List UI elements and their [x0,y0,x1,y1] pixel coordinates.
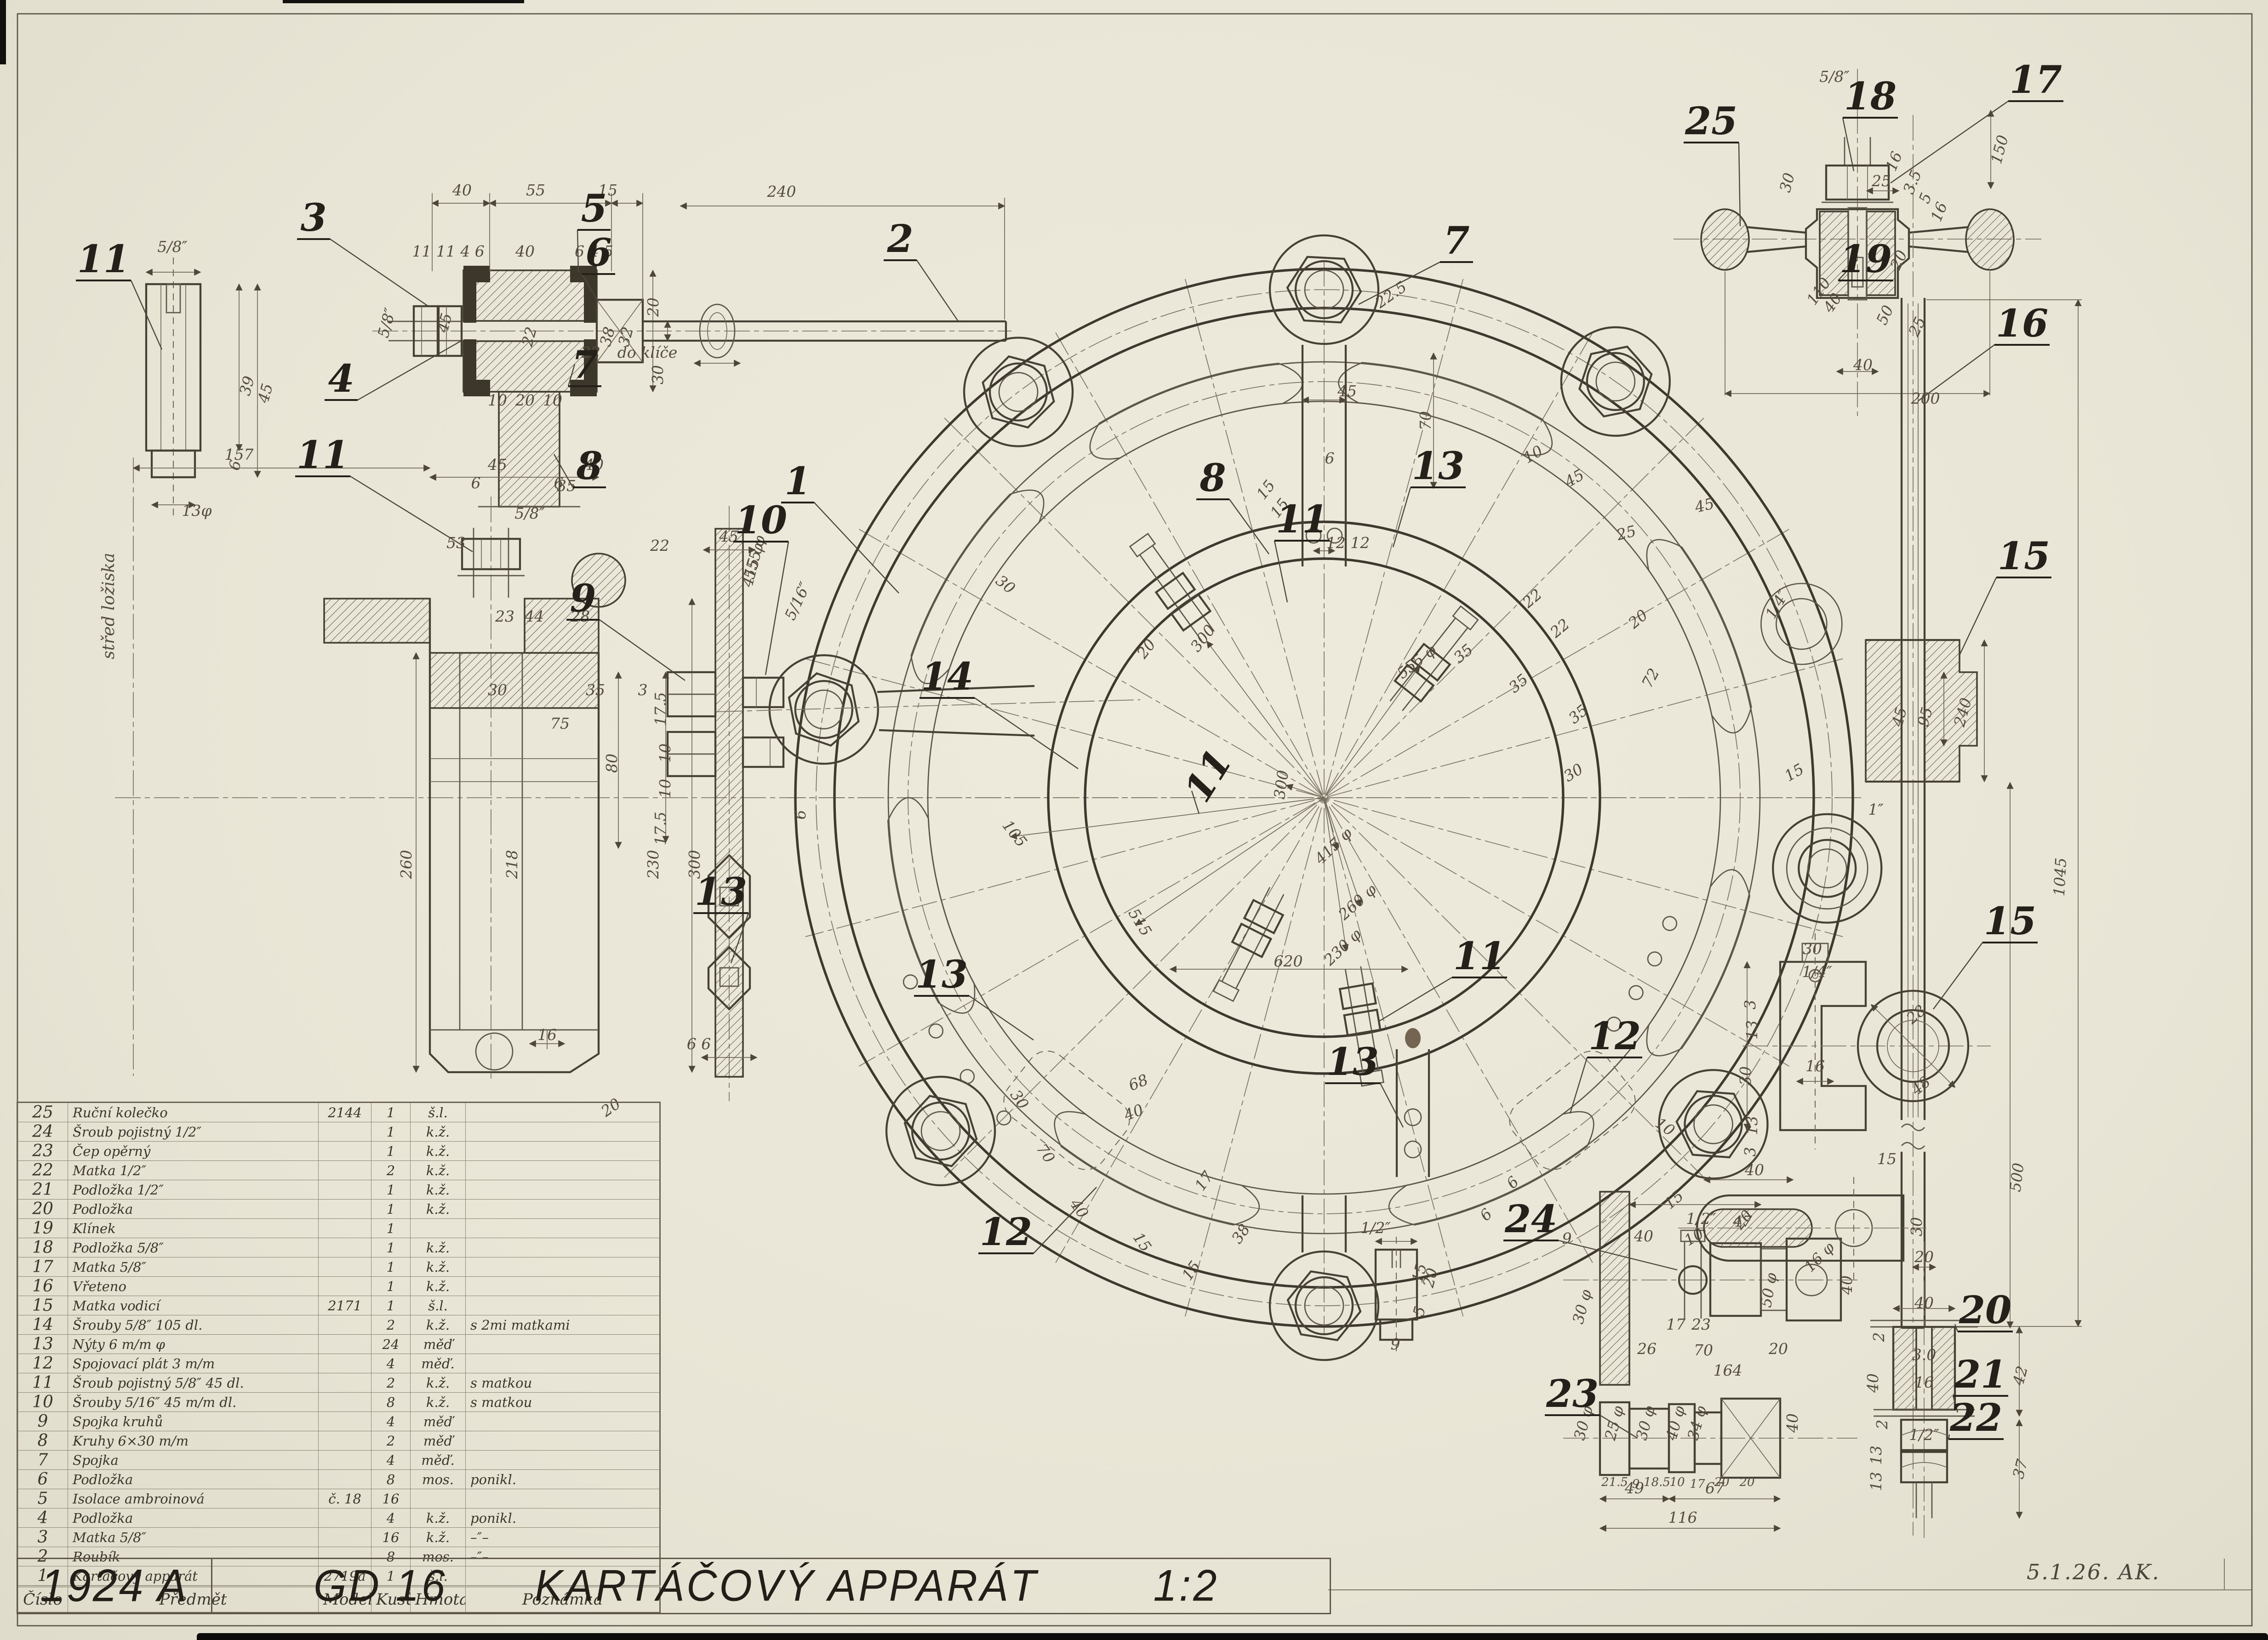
dimension-label: 3 [638,681,648,699]
dimension-label: 30 [488,681,507,699]
dimension-label: 2 [1870,1332,1888,1343]
dimension-label: 10 [1669,1475,1685,1489]
table-cell [319,1200,371,1219]
table-cell: 4 [371,1354,411,1373]
dimension-label: 45 [1337,382,1357,400]
table-cell: k.ž. [411,1238,466,1257]
title-block: 1924 A GD 16 KARTÁČOVÝ APPARÁT 1:2 [17,1558,1331,1614]
table-cell: 1 [371,1277,411,1296]
table-cell: k.ž. [411,1142,466,1161]
dimension-label: 20 [1739,1475,1754,1489]
part-callout: 12 [980,1210,1032,1254]
table-cell: ponikl. [466,1470,660,1489]
part-callout: 2 [886,217,913,261]
part-callout: 11 [1453,934,1506,978]
table-cell [466,1122,660,1142]
dimension-label: 30 [1737,1066,1754,1086]
table-cell: 2144 [319,1103,371,1122]
dimension-label: 620 [1274,952,1303,970]
table-row: 25Ruční kolečko21441š.l. [17,1103,660,1122]
table-row: 24Šroub pojistný 1/2″1k.ž. [17,1122,660,1142]
table-cell [466,1412,660,1431]
table-cell: měď [411,1412,466,1431]
parts-table-body: 25Ruční kolečko21441š.l.24Šroub pojistný… [17,1103,660,1613]
part-callout: 6 [585,231,611,275]
dimension-label: 5/8″ [374,306,400,340]
table-cell: 24 [371,1335,411,1354]
dimension-label: 12 12 [1326,534,1370,552]
dimension-label: 25 φ [1601,1404,1627,1442]
drawing-title: KARTÁČOVÝ APPARÁT [535,1560,1039,1611]
scan-edge-bottom [197,1633,2268,1640]
table-cell: š.l. [411,1103,466,1122]
dimension-label: střed ložiska [99,553,118,659]
dimension-label: 70 [1033,1140,1058,1166]
dimension-label: 1/2″ [1360,1219,1391,1237]
table-cell: k.ž. [411,1509,466,1528]
dimension-label: 6 [1476,1205,1496,1224]
dimension-label: 10 [1520,442,1546,467]
dimension-label: 5/16″ [781,579,814,623]
dimension-label: 3 [1741,1000,1759,1010]
dimension-label: 9 [1562,1229,1572,1247]
table-cell: Spojka [68,1451,319,1470]
dimension-label: 20 [515,391,535,409]
table-cell [319,1354,371,1373]
table-cell [466,1257,660,1277]
table-cell [466,1103,660,1122]
dimension-label: 3 [1741,1147,1759,1157]
part-callout: 11 [297,433,349,477]
dimension-label: 21.5 [1601,1475,1628,1489]
table-cell: k.ž. [411,1180,466,1200]
table-cell: 16 [17,1277,68,1296]
table-cell [319,1412,371,1431]
table-cell: k.ž. [411,1161,466,1180]
part-callout: 13 [1326,1040,1379,1084]
table-cell [466,1354,660,1373]
dimension-label: 6 6 [687,1035,711,1053]
table-row: 8Kruhy 6×30 m/m2měď [17,1431,660,1451]
dimension-label: 30 φ [1569,1287,1595,1326]
table-cell: 1 [371,1257,411,1277]
table-cell: 13 [17,1335,68,1354]
table-cell: Ruční kolečko [68,1103,319,1122]
table-cell: Isolace ambroinová [68,1489,319,1509]
table-cell [319,1238,371,1257]
part-callout: 17 [2010,58,2062,102]
table-cell: 8 [371,1470,411,1489]
dimension-label: 40 [1783,1413,1801,1433]
dimension-label: 50 [1873,303,1897,328]
table-cell: 2 [371,1373,411,1393]
table-row: 3Matka 5/8″16k.ž.–″– [17,1528,660,1547]
table-cell: 6 [17,1470,68,1489]
table-cell [319,1393,371,1412]
part-callout: 8 [1199,456,1226,500]
part-callout: 13 [1412,444,1464,488]
table-cell: 2171 [319,1296,371,1315]
table-cell [466,1238,660,1257]
table-cell: Podložka 1/2″ [68,1180,319,1200]
dimension-label: 20 [644,297,662,317]
table-cell: 1 [371,1296,411,1315]
dimension-label: 157 [225,446,254,463]
table-cell: Podložka [68,1470,319,1489]
dimension-label: 48 [1907,1073,1934,1099]
table-row: 18Podložka 5/8″1k.ž. [17,1238,660,1257]
drawing-scale: 1:2 [1153,1560,1219,1611]
part-callout: 11 [1276,497,1328,542]
title-row: GD 16 KARTÁČOVÝ APPARÁT 1:2 [212,1558,1330,1614]
dimension-label: 16 [1914,1373,1934,1391]
dimension-label: 6 [791,810,809,820]
table-cell: 4 [371,1451,411,1470]
part-callout: 19 [1840,237,1892,281]
table-row: 14Šrouby 5/8″ 105 dl.2k.ž.s 2mi matkami [17,1315,660,1335]
part-callout: 14 [921,655,973,699]
table-cell: 25 [17,1103,68,1122]
dimension-label: 2 [1873,1420,1891,1430]
dimension-label: 17.5 [651,811,669,845]
part-callout: 13 [695,870,747,914]
table-cell: ponikl. [466,1509,660,1528]
table-cell: 9 [17,1412,68,1431]
table-cell [466,1161,660,1180]
dimension-label: 9 [1391,1335,1400,1353]
dimension-label: 75 [550,714,570,732]
dimension-label: 45 [1561,466,1587,491]
table-cell [319,1335,371,1354]
table-cell: Podložka [68,1509,319,1528]
table-row: 19Klínek1 [17,1219,660,1238]
dimension-label: 17 [1690,1477,1705,1491]
table-cell: 2 [371,1431,411,1451]
part-callout: 10 [735,498,787,543]
dimension-label: 30 [649,365,667,384]
part-callout: 8 [576,444,602,488]
table-cell [466,1277,660,1296]
table-row: 21Podložka 1/2″1k.ž. [17,1180,660,1200]
table-row: 22Matka 1/2″2k.ž. [17,1161,660,1180]
signature: 5.1.26. AK. [2027,1560,2220,1584]
table-row: 11Šroub pojistný 5/8″ 45 dl.2k.ž.s matko… [17,1373,660,1393]
connector-bar-detail [618,506,783,1101]
dimension-label: 16 φ [1800,1238,1838,1275]
table-cell: 1 [371,1238,411,1257]
table-row: 15Matka vodicí21711š.l. [17,1296,660,1315]
part-callout: 15 [1984,899,2036,943]
rod-detail [643,198,1006,363]
dimension-label: 30 [1803,940,1822,958]
table-cell: Matka vodicí [68,1296,319,1315]
table-cell [319,1180,371,1200]
dimension-label: 44 [524,607,544,625]
table-cell: Podložka [68,1200,319,1219]
dimension-label: 30 [1560,760,1586,785]
table-row: 5Isolace ambroinováč. 1816 [17,1489,660,1509]
table-cell: 1 [371,1122,411,1142]
part-callout: 3 [300,196,326,240]
table-row: 6Podložka8mos.ponikl. [17,1470,660,1489]
dimension-label: 200 [1911,389,1940,407]
table-cell: Klínek [68,1219,319,1238]
part-callout: 7 [1443,219,1469,263]
table-cell: 7 [17,1451,68,1470]
dimension-label: 40 [1914,1294,1934,1312]
dimension-label: 260 φ [1335,880,1380,924]
dimension-label: 35 [557,477,576,495]
table-row: 20Podložka1k.ž. [17,1200,660,1219]
table-cell [319,1122,371,1142]
table-cell: 1 [371,1103,411,1122]
table-cell: 18 [17,1238,68,1257]
table-row: 23Čep opěrný1k.ž. [17,1142,660,1161]
part-callout: 24 [1504,1197,1557,1241]
dimension-label: 40 [1634,1227,1653,1245]
table-cell: s matkou [466,1373,660,1393]
dimension-label: 5/8″ [157,238,188,256]
table-cell: 1 [371,1180,411,1200]
table-cell: 24 [17,1122,68,1142]
dimension-label: 10 [656,743,674,763]
dimension-label: 1045 [2050,857,2070,897]
dimension-label: 13 [1867,1446,1885,1465]
dimension-label: 5 [1409,1304,1429,1318]
table-cell: 17 [17,1257,68,1277]
dimension-label: 49 [1624,1479,1644,1497]
table-row: 17Matka 5/8″1k.ž. [17,1257,660,1277]
dimension-label: 40 [1121,1100,1146,1124]
part-callout: 16 [1996,302,2048,346]
dimension-label: 30 [1908,1217,1925,1236]
dimension-label: 20 [1914,1248,1934,1266]
table-cell [319,1277,371,1296]
part-callout: 13 [915,953,968,997]
table-cell [466,1489,660,1509]
table-cell: 8 [371,1393,411,1412]
table-cell: s matkou [466,1393,660,1412]
table-cell: 16 [371,1528,411,1547]
dimension-label: 42 [2009,1364,2031,1388]
scan-edge-left [0,0,6,64]
dimension-label: 40 [452,181,472,199]
table-cell [319,1142,371,1161]
dimension-label: 55 [526,181,545,199]
dimension-label: 18.5 [1644,1475,1670,1489]
dimension-label: 45 [487,456,507,474]
dimension-label: 40 [1838,1275,1856,1295]
table-cell: 23 [17,1142,68,1161]
table-cell: 19 [17,1219,68,1238]
table-cell: 12 [17,1354,68,1373]
dimension-label: 40 [1864,1373,1882,1393]
table-cell [466,1219,660,1238]
part-callout: 4 [328,357,354,401]
table-cell: měď. [411,1451,466,1470]
dimension-label: 15 [1781,760,1807,785]
part-callout: 11 [77,237,130,281]
dimension-label: 30 [1776,171,1799,194]
dimension-label: 45 [1692,494,1716,516]
dimension-label: 13 [1743,1020,1761,1040]
parts-table: 25Ruční kolečko21441š.l.24Šroub pojistný… [17,1102,659,1557]
dimension-label: 3.0 [1912,1346,1936,1364]
table-cell: Kruhy 6×30 m/m [68,1431,319,1451]
table-cell: 5 [17,1489,68,1509]
table-cell: 22 [17,1161,68,1180]
dimension-label: 5/8″ [514,504,545,522]
fork-detail [1742,933,1991,1149]
dimension-label: 15 [1661,1187,1687,1213]
table-cell: 14 [17,1315,68,1335]
table-row: 9Spojka kruhů4měď [17,1412,660,1431]
table-cell: Podložka 5/8″ [68,1238,319,1257]
dimension-label: 13 [1867,1472,1885,1491]
dimension-label: 26 [1637,1340,1657,1358]
dimension-label: 20 [1133,635,1159,662]
dimension-label: 10 [656,779,674,798]
dimension-label: 11 11 4 6 [412,242,484,260]
dimension-label: 68 [1126,1070,1151,1094]
dimension-label: 70 [1694,1341,1713,1359]
part-callout: 7 [571,343,598,387]
table-cell: Šroub pojistný 5/8″ 45 dl. [68,1373,319,1393]
dimension-label: 53 [446,534,466,552]
dimension-label: 230 [644,850,662,880]
drawing-number: 1924 A [18,1558,212,1614]
dimension-label: 300 [1270,769,1292,800]
dimension-label: 67 [1705,1479,1725,1497]
dimension-label: 116 [1668,1509,1697,1526]
table-cell: měď [411,1431,466,1451]
table-cell: 1 [371,1219,411,1238]
table-cell [319,1470,371,1489]
table-cell: 8 [17,1431,68,1451]
part-callout: 11 [1176,742,1241,810]
dimension-label: 13 [1743,1116,1761,1135]
table-cell: 21 [17,1180,68,1200]
table-row: 7Spojka4měď. [17,1451,660,1470]
table-cell: k.ž. [411,1122,466,1142]
table-cell [319,1373,371,1393]
table-cell [319,1528,371,1547]
table-cell [319,1451,371,1470]
ink-blot [1405,1028,1421,1048]
dimension-label: 20 [1768,1340,1788,1358]
table-cell: 4 [371,1412,411,1431]
table-cell [466,1431,660,1451]
dimension-label: 218 [503,850,521,880]
part-callout: 20 [1959,1288,2011,1332]
dimension-label: 10 [543,391,562,409]
dimension-label: 72 [1638,665,1663,691]
table-cell: Matka 5/8″ [68,1528,319,1547]
dimension-label: 500 [2006,1162,2027,1193]
dimension-label: 37 [2009,1457,2032,1481]
table-cell [466,1335,660,1354]
part-callout: 15 [1998,534,2050,578]
dimension-label: 23 [495,607,514,625]
table-cell: 2 [371,1161,411,1180]
table-cell: měď [411,1335,466,1354]
dimension-label: 22 [1546,615,1573,642]
table-cell: –″– [466,1528,660,1547]
dimension-label: 164 [1714,1361,1742,1379]
dimension-label: 1″ [1868,800,1884,818]
dimension-label: 25 [1614,522,1638,544]
table-cell: Vřeteno [68,1277,319,1296]
table-cell [319,1257,371,1277]
table-cell: Nýty 6 m/m φ [68,1335,319,1354]
table-cell [466,1451,660,1470]
main-assembly-view [717,235,1881,1360]
part-callout: 9 [570,577,596,621]
table-cell [319,1315,371,1335]
table-cell [319,1431,371,1451]
table-cell [466,1142,660,1161]
table-cell: 2 [371,1315,411,1335]
dimension-label: 6 [1503,1173,1522,1192]
table-cell [466,1296,660,1315]
table-cell: 1 [371,1142,411,1161]
table-row: 16Vřeteno1k.ž. [17,1277,660,1296]
scan-edge-top [283,0,524,3]
dimension-label: 15 [1129,1229,1155,1255]
table-cell: Spojka kruhů [68,1412,319,1431]
table-cell: k.ž. [411,1315,466,1335]
model-code: GD 16 [314,1560,447,1611]
table-cell [319,1161,371,1180]
dimension-label: 40 [1853,356,1873,374]
dimension-label: 1/2″ [1909,1426,1939,1444]
part-callout: 1 [784,459,811,503]
table-cell: Matka 5/8″ [68,1257,319,1277]
dimension-label: 17 [1666,1315,1685,1333]
table-cell: k.ž. [411,1528,466,1547]
table-row: 10Šrouby 5/16″ 45 m/m dl.8k.ž.s matkou [17,1393,660,1412]
table-cell: k.ž. [411,1277,466,1296]
dimension-label: 25 [1871,172,1891,190]
dimension-label: 1/2″ [1686,1210,1716,1228]
clamp-detail [372,193,1011,507]
table-cell: Čep opěrný [68,1142,319,1161]
table-cell: 1 [371,1200,411,1219]
part-callout: 23 [1546,1372,1599,1416]
table-row: 4Podložka4k.ž.ponikl. [17,1509,660,1528]
table-cell: š.l. [411,1296,466,1315]
table-cell [466,1180,660,1200]
table-cell: 20 [17,1200,68,1219]
table-cell: mos. [411,1470,466,1489]
dimension-label: 16 [537,1026,557,1044]
table-cell: 10 [17,1393,68,1412]
dimension-label: 35 [586,681,605,699]
dimension-label: 16 [1805,1057,1825,1075]
dimension-label: 22 [650,537,669,554]
table-row: 13Nýty 6 m/m φ24měď [17,1335,660,1354]
table-cell: č. 18 [319,1489,371,1509]
table-cell: 4 [371,1509,411,1528]
part-callout: 25 [1685,99,1737,143]
dimension-label: 23 [1691,1315,1711,1333]
table-row: 12Spojovací plát 3 m/m4měď. [17,1354,660,1373]
dimension-label: do klíče [617,343,678,361]
dimension-label: 240 [767,183,796,200]
table-cell: k.ž. [411,1373,466,1393]
dimension-label: 260 [397,850,415,880]
table-cell: 16 [371,1489,411,1509]
